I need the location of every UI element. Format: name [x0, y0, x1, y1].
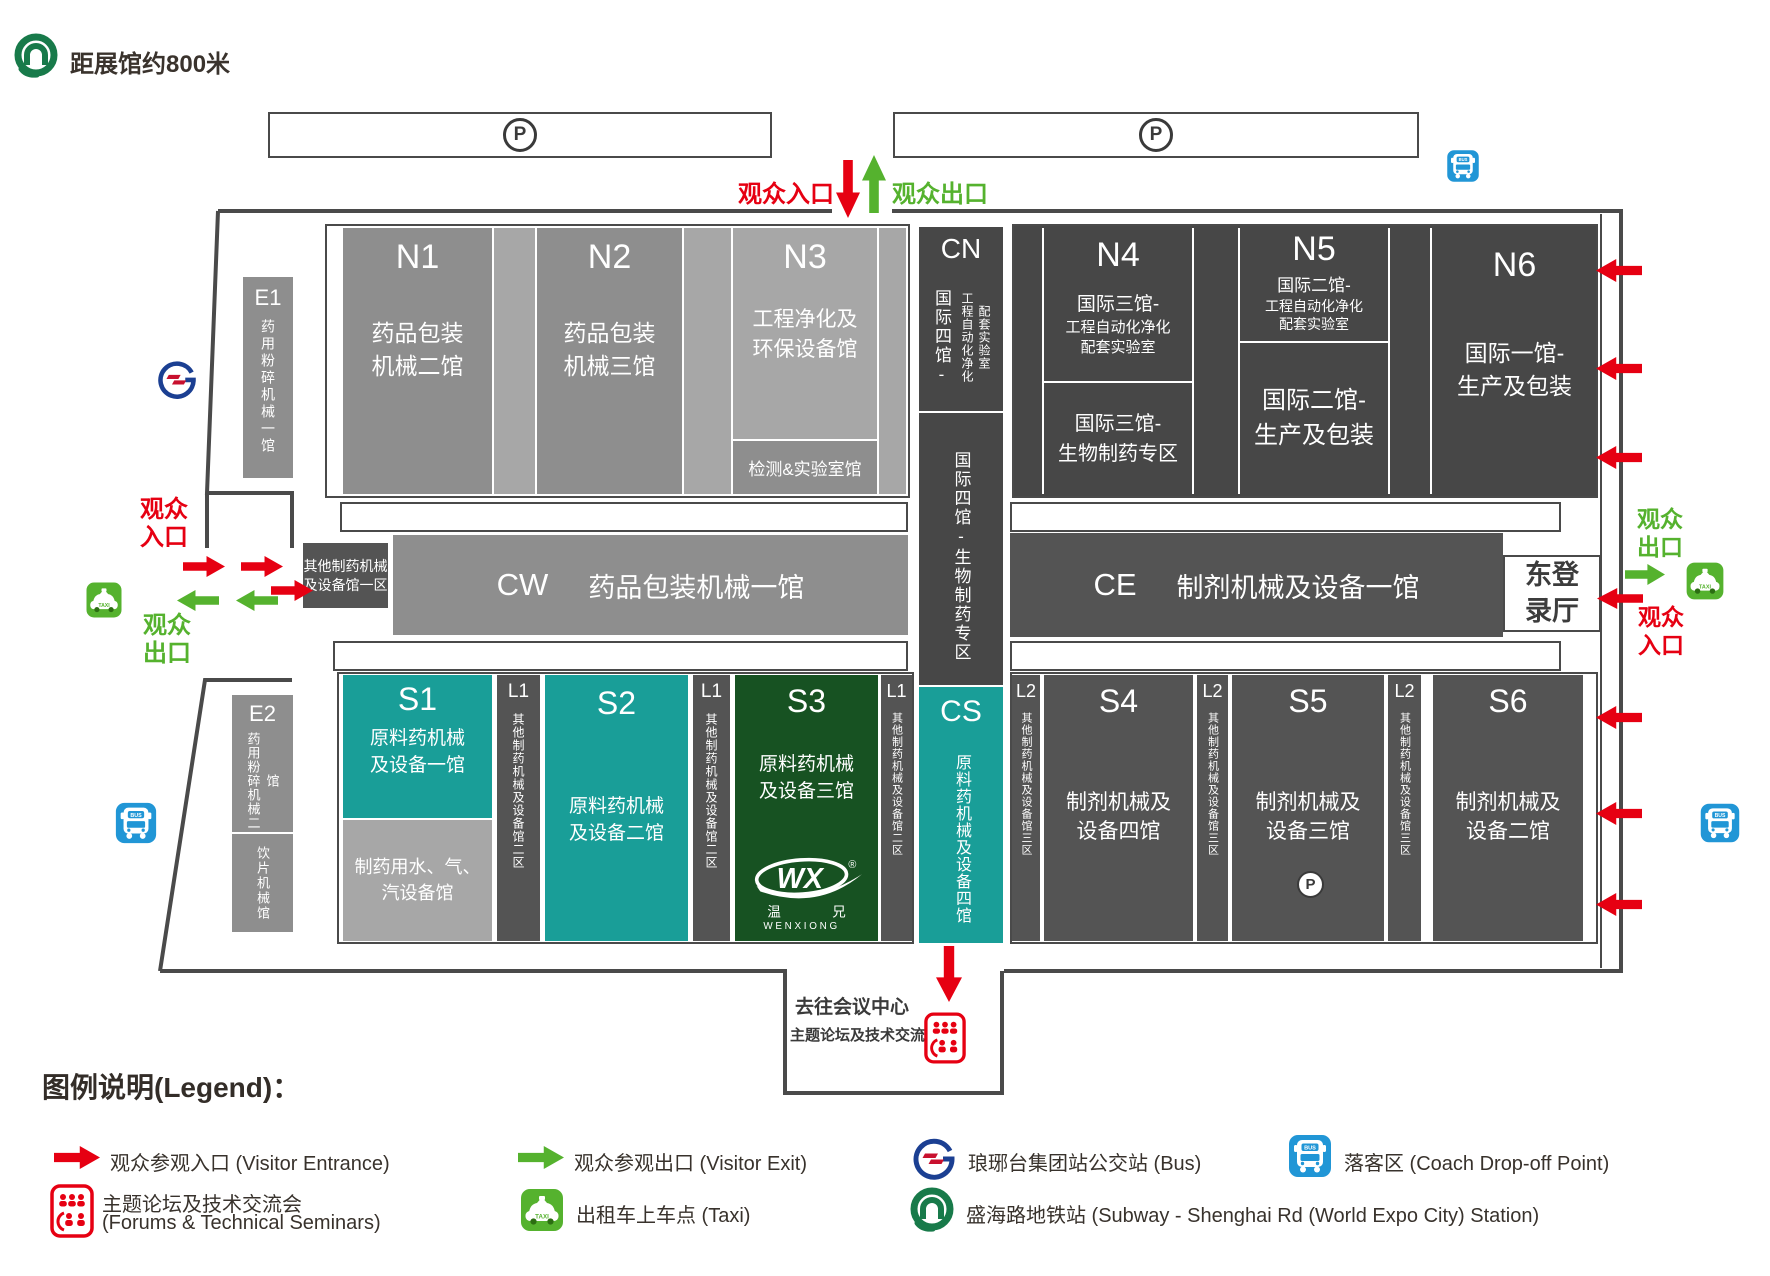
- taxi-icon: [1684, 560, 1726, 602]
- hall-l1-name: 其他制药机械及设备馆二区: [889, 712, 905, 856]
- hall-s1-name: 原料药机械 及设备一馆: [370, 726, 465, 779]
- hall-l2-code: L2: [1394, 681, 1414, 702]
- corridor: [340, 502, 908, 532]
- hall-s2-name: 原料药机械 及设备二馆: [569, 794, 664, 847]
- hall-l1-name: 其他制药机械及设备馆二区: [510, 713, 527, 869]
- north-exit-label: 观众出口: [892, 174, 988, 209]
- hall-lab: 检测&实验室馆: [733, 441, 877, 494]
- legend-coach-icon: [1286, 1132, 1334, 1180]
- hall-e2-sub-name: 饮片机械馆: [253, 846, 272, 921]
- hall-s3-name: 原料药机械 及设备三馆: [759, 752, 854, 805]
- bus-stop-icon: [113, 800, 159, 846]
- east-exit-label: 观众 出口: [1637, 506, 1683, 561]
- hall-l2-code: L2: [1016, 681, 1036, 702]
- hall-n4-code: N4: [1096, 236, 1139, 275]
- parking-p-icon-small: P: [1297, 871, 1324, 898]
- hall-s1-sub: 制药用水、气、 汽设备馆: [343, 820, 492, 941]
- hall-cw-name: 药品包装机械一馆: [588, 566, 804, 605]
- hall-s5-code: S5: [1288, 683, 1327, 720]
- conference-title: 去往会议中心: [795, 992, 909, 1019]
- hall-s6-name: 制剂机械及 设备二馆: [1456, 788, 1561, 847]
- legend-exit-label: 观众参观出口 (Visitor Exit): [574, 1147, 807, 1176]
- hall-l1-code: L1: [886, 681, 906, 702]
- hall-lab-name: 检测&实验室馆: [748, 455, 861, 480]
- hall-n4-bottom: 国际三馆- 生物制药专区: [1044, 383, 1192, 494]
- hall-cn-lower: 国际四馆-生物制药专区: [949, 427, 974, 685]
- wx-logo-cn1: 温: [767, 905, 781, 920]
- hall-strip: [879, 228, 906, 494]
- hall-s1-sub-name: 制药用水、气、 汽设备馆: [355, 855, 481, 905]
- hall-n6: N6 国际一馆- 生产及包装: [1433, 228, 1596, 494]
- hall-l1-code: L1: [701, 681, 722, 703]
- wx-logo-reg: ®: [848, 859, 856, 871]
- legend-forum-label-en: (Forums & Technical Seminars): [102, 1212, 381, 1235]
- hall-s2-code: S2: [597, 685, 636, 722]
- hall-l2-name: 其他制药机械及设备馆三区: [1205, 712, 1221, 856]
- hall-e2-code: E2: [249, 701, 276, 727]
- east-registration-hall: 东登 录厅: [1503, 555, 1601, 632]
- hall-n2-name: 药品包装 机械三馆: [564, 317, 656, 384]
- hall-s4-name: 制剂机械及 设备四馆: [1066, 788, 1171, 847]
- hall-s5: S5 制剂机械及 设备三馆: [1232, 675, 1384, 941]
- hall-cs-code: CS: [940, 695, 982, 729]
- corridor: [1010, 502, 1561, 532]
- corridor: [333, 641, 908, 671]
- west-exit-label: 观众 出口: [143, 612, 191, 667]
- hall-cn: CN 国际四馆- 工程自动化净化 配套实验室 国际四馆-生物制药专区: [919, 227, 1003, 685]
- hall-strip: [684, 228, 731, 494]
- hall-n3: N3 工程净化及 环保设备馆: [733, 228, 877, 439]
- hall-e1-name: 药用粉碎机械一馆: [258, 319, 278, 455]
- hall-l1: L1 其他制药机械及设备馆二区: [693, 675, 730, 941]
- hall-cn-line1: 国际四馆-: [929, 269, 954, 405]
- legend-subway-label: 盛海路地铁站 (Subway - Shenghai Rd (World Expo…: [966, 1199, 1539, 1228]
- hall-n1-name: 药品包装 机械二馆: [372, 317, 464, 384]
- exhibition-map: BUS TAXI: [0, 0, 1770, 1276]
- legend-bus-label: 琅琊台集团站公交站 (Bus): [968, 1147, 1201, 1176]
- hall-n5-top: N5 国际二馆- 工程自动化净化 配套实验室: [1240, 228, 1388, 341]
- hall-n4-top2: 工程自动化净化 配套实验室: [1065, 318, 1170, 359]
- legend-title: 图例说明(Legend)：: [42, 1066, 300, 1106]
- hall-s2: S2 原料药机械 及设备二馆: [545, 675, 688, 941]
- hall-s3-code: S3: [787, 683, 826, 720]
- hall-ce: CE 制剂机械及设备一馆: [1010, 533, 1503, 637]
- parking-strip-west: P: [268, 112, 772, 158]
- subway-logo-icon: [12, 32, 60, 80]
- hall-n5-bottom: 国际二馆- 生产及包装: [1240, 343, 1388, 494]
- hall-n5-code: N5: [1292, 230, 1335, 269]
- hall-n6-name: 国际一馆- 生产及包装: [1457, 337, 1572, 404]
- hall-e1: E1 药用粉碎机械一馆: [243, 277, 293, 478]
- coach-dropoff-icon: [1445, 148, 1481, 184]
- hall-l2-name: 其他制药机械及设备馆三区: [1397, 712, 1413, 856]
- parking-p-icon: P: [503, 118, 537, 152]
- legend-coach-label: 落客区 (Coach Drop-off Point): [1344, 1147, 1609, 1176]
- legend-taxi-label: 出租车上车点 (Taxi): [576, 1199, 750, 1228]
- hall-s3: S3 原料药机械 及设备三馆 WX ® 温 兄 WENXIONG: [735, 675, 878, 941]
- hall-n4-top: N4 国际三馆- 工程自动化净化 配套实验室: [1044, 228, 1192, 381]
- east-entrance-label: 观众 入口: [1638, 604, 1684, 659]
- hall-l2: L2 其他制药机械及设备馆三区: [1012, 675, 1040, 941]
- hall-other1: 其他制药机械 及设备馆一区: [303, 543, 388, 608]
- wenxiong-logo: WX ® 温 兄 WENXIONG: [744, 853, 870, 937]
- parking-strip-east: P: [893, 112, 1419, 158]
- conference-subtitle: 主题论坛及技术交流会: [790, 1024, 940, 1045]
- hall-strip: [494, 228, 535, 494]
- legend-subway-icon: [908, 1186, 956, 1234]
- corridor: [1010, 641, 1561, 671]
- hall-n5-top1: 国际二馆-: [1277, 271, 1351, 296]
- hall-l2: L2 其他制药机械及设备馆三区: [1197, 675, 1228, 941]
- hall-s5-name: 制剂机械及 设备三馆: [1256, 788, 1361, 847]
- bus-stop-icon: [1698, 801, 1742, 845]
- hall-e2: E2 药用粉碎机械二馆: [232, 695, 293, 832]
- hall-cw: CW 药品包装机械一馆: [393, 535, 908, 635]
- wx-logo-text: WX: [776, 863, 824, 895]
- hall-n5-bottom-name: 国际二馆- 生产及包装: [1254, 384, 1374, 454]
- hall-s1: S1 原料药机械 及设备一馆: [343, 675, 492, 818]
- hall-n3-code: N3: [783, 238, 826, 277]
- north-entrance-label: 观众入口: [738, 174, 834, 209]
- hall-cn-code: CN: [941, 233, 981, 265]
- hall-s6: S6 制剂机械及 设备二馆: [1433, 675, 1583, 941]
- legend-entrance-label: 观众参观入口 (Visitor Entrance): [110, 1147, 390, 1176]
- hall-n4-bottom-name: 国际三馆- 生物制药专区: [1058, 409, 1178, 469]
- hall-l1: L1 其他制药机械及设备馆二区: [881, 675, 912, 941]
- hall-other1-name: 其他制药机械 及设备馆一区: [304, 557, 388, 595]
- hall-n4-top1: 国际三馆-: [1077, 289, 1159, 316]
- hall-l2: L2 其他制药机械及设备馆三区: [1388, 675, 1421, 941]
- hall-ce-name: 制剂机械及设备一馆: [1177, 566, 1420, 605]
- hall-n2-code: N2: [588, 238, 631, 277]
- legend-langyatai-bus-logo-icon: [910, 1134, 958, 1182]
- hall-cs: CS 原料药机械及设备四馆: [919, 687, 1003, 943]
- hall-l1: L1 其他制药机械及设备馆二区: [497, 675, 540, 941]
- hall-cs-name: 原料药机械及设备四馆: [949, 735, 973, 943]
- hall-n3-name: 工程净化及 环保设备馆: [753, 305, 858, 366]
- wx-logo-en: WENXIONG: [763, 921, 839, 932]
- hall-cw-code: CW: [497, 567, 549, 603]
- langyatai-bus-logo-icon: [155, 357, 199, 401]
- hall-l1-name: 其他制药机械及设备馆二区: [703, 713, 720, 869]
- hall-s6-code: S6: [1488, 683, 1527, 720]
- hall-n1: N1 药品包装 机械二馆: [343, 228, 492, 494]
- west-entrance-label: 观众 入口: [140, 496, 188, 551]
- hall-l2-code: L2: [1202, 681, 1222, 702]
- legend-forum-icon: [50, 1184, 94, 1238]
- hall-n2: N2 药品包装 机械三馆: [537, 228, 682, 494]
- hall-n5-top2: 工程自动化净化 配套实验室: [1265, 297, 1363, 333]
- parking-p-icon: P: [1139, 118, 1173, 152]
- hall-ce-code: CE: [1093, 567, 1136, 603]
- east-registration-hall-name: 东登 录厅: [1525, 558, 1579, 628]
- hall-e2-sub: 饮片机械馆: [232, 834, 293, 932]
- taxi-icon: [84, 580, 124, 620]
- legend-taxi-icon: [518, 1186, 566, 1234]
- hall-s4-code: S4: [1099, 683, 1138, 720]
- hall-s4: S4 制剂机械及 设备四馆: [1044, 675, 1193, 941]
- hall-n6-code: N6: [1493, 246, 1536, 285]
- hall-e1-code: E1: [255, 285, 282, 311]
- hall-e2-name: 药用粉碎机械二馆: [244, 729, 282, 832]
- forum-icon: [924, 1012, 966, 1064]
- wx-logo-cn2: 兄: [832, 905, 846, 920]
- subway-distance-note: 距展馆约800米: [70, 44, 230, 79]
- hall-s1-code: S1: [398, 681, 437, 718]
- hall-l2-name: 其他制药机械及设备馆三区: [1018, 712, 1034, 856]
- hall-cn-line2: 工程自动化净化 配套实验室: [959, 269, 993, 405]
- hall-l1-code: L1: [508, 681, 529, 703]
- hall-n1-code: N1: [396, 238, 439, 277]
